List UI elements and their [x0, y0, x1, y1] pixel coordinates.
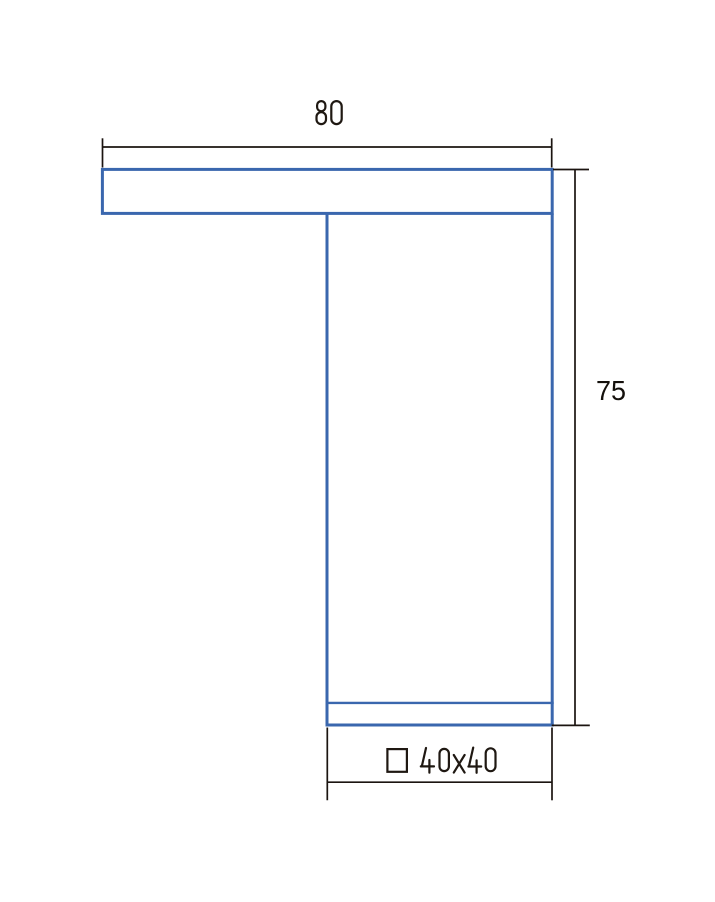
svg-text:75: 75: [596, 375, 626, 406]
